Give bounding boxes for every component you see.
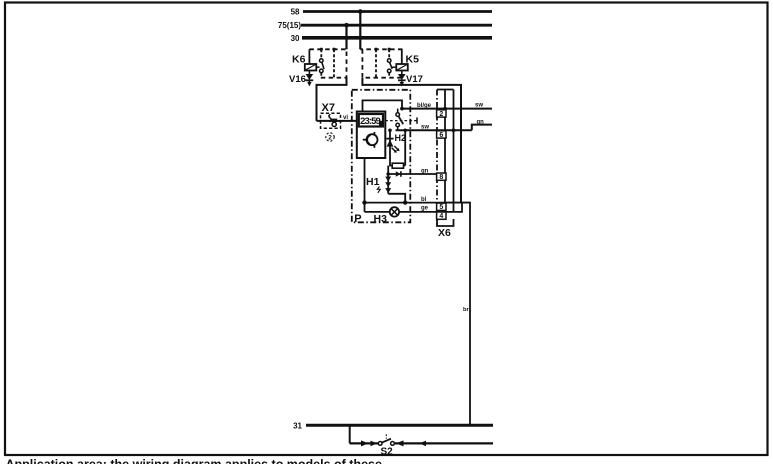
svg-text:75(15): 75(15) (278, 21, 301, 30)
svg-text:K6: K6 (292, 54, 306, 66)
svg-text:V16: V16 (289, 74, 306, 85)
svg-text:ge: ge (421, 206, 429, 212)
svg-text:31: 31 (293, 422, 302, 431)
svg-text:5: 5 (439, 204, 443, 211)
svg-text:4: 4 (439, 213, 443, 220)
svg-text:sw: sw (475, 103, 483, 109)
svg-text:bl: bl (421, 197, 427, 203)
svg-text:S2: S2 (381, 446, 394, 457)
svg-text:br: br (463, 307, 470, 313)
svg-text:58: 58 (291, 8, 300, 17)
svg-text:gn: gn (421, 168, 429, 174)
svg-text:sw: sw (421, 124, 429, 130)
svg-text:bl/ge: bl/ge (417, 103, 432, 109)
svg-text:Application area: the wiring d: Application area: the wiring diagram app… (6, 458, 383, 464)
svg-text:23:59: 23:59 (360, 116, 380, 127)
svg-text:30: 30 (291, 34, 300, 43)
svg-text:X6: X6 (438, 227, 451, 239)
svg-text:X7: X7 (322, 102, 335, 114)
svg-text:2: 2 (439, 111, 443, 118)
svg-text:V17: V17 (406, 74, 423, 85)
svg-text:H1: H1 (366, 176, 380, 188)
svg-text:8: 8 (439, 174, 443, 181)
svg-text:gn: gn (477, 120, 485, 126)
svg-text:vi: vi (343, 115, 348, 121)
svg-text:P: P (354, 213, 361, 225)
svg-text:6: 6 (439, 132, 443, 139)
svg-text:H2: H2 (395, 133, 407, 143)
svg-text:H3: H3 (374, 213, 388, 225)
svg-text:2: 2 (328, 135, 332, 142)
